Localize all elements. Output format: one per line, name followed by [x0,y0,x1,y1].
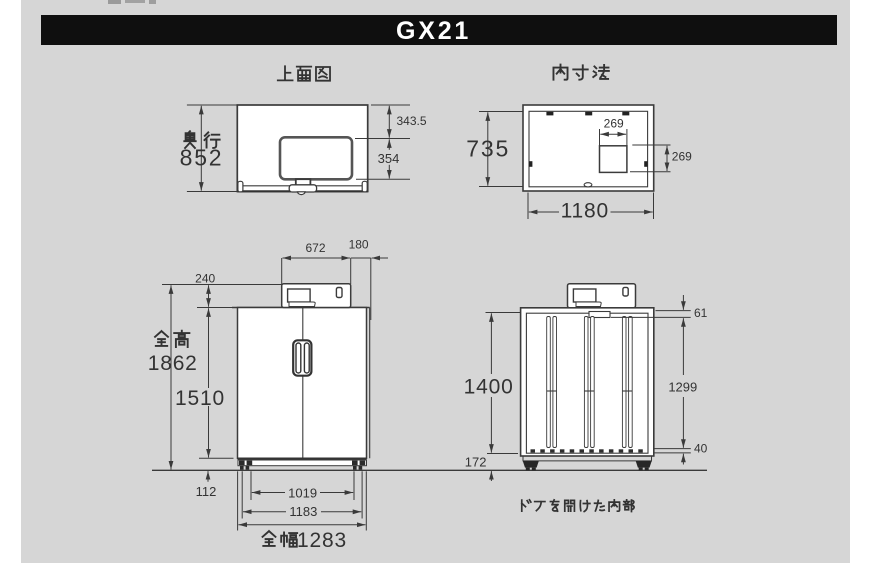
svg-text:180: 180 [349,238,369,252]
svg-text:240: 240 [195,272,215,286]
svg-text:1283: 1283 [297,529,347,552]
svg-text:1180: 1180 [561,200,609,223]
svg-text:269: 269 [604,117,624,131]
svg-text:672: 672 [305,241,325,255]
svg-text:112: 112 [196,484,217,499]
svg-text:1183: 1183 [289,504,317,519]
svg-text:735: 735 [466,136,510,162]
svg-text:269: 269 [672,150,692,164]
svg-text:172: 172 [465,454,487,469]
svg-text:343.5: 343.5 [397,114,427,128]
svg-text:1299: 1299 [668,380,697,395]
svg-text:61: 61 [694,306,708,320]
svg-text:852: 852 [180,145,224,171]
svg-text:1400: 1400 [464,376,514,399]
svg-text:1862: 1862 [148,352,198,375]
svg-text:1019: 1019 [288,486,317,501]
svg-text:1510: 1510 [175,387,225,410]
svg-text:40: 40 [694,442,708,456]
svg-text:354: 354 [378,151,400,166]
